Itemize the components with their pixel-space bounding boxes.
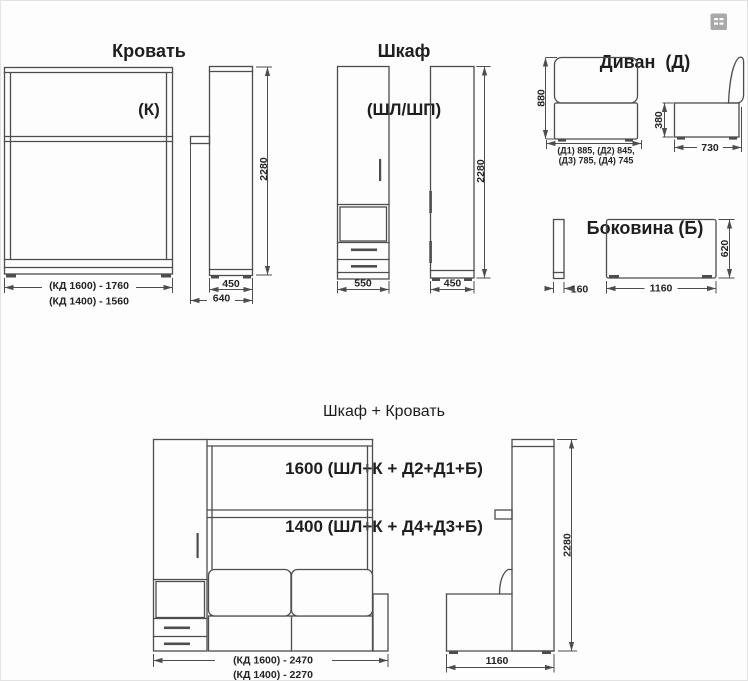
cabinet-side-dims: 450 2280 xyxy=(431,67,491,294)
image-placeholder-icon xyxy=(711,14,728,31)
combo-front-view xyxy=(154,440,389,652)
sidewall-edge-view xyxy=(554,220,565,279)
sidewall-thickness-dim: 160 xyxy=(571,284,589,296)
sofa-side-view xyxy=(675,57,744,139)
cabinet-width-dim: 550 xyxy=(354,278,372,290)
bed-side-view xyxy=(191,67,253,279)
bed-side-width-dim: 450 xyxy=(222,278,240,290)
furniture-dimensions-sheet: Кровать (К) Шкаф (ШЛ/ШП) Диван (Д) Боков… xyxy=(0,0,748,681)
sofa-widths-line1-dim: (Д1) 885, (Д2) 845, xyxy=(557,146,634,156)
bed-front-dims: (КД 1600) - 1760 (КД 1400) - 1560 xyxy=(5,278,173,308)
sidewall-dims: 160 1160 620 xyxy=(545,220,735,296)
combo-width-1600-dim: (КД 1600) - 2470 xyxy=(233,655,313,667)
cabinet-front-dims: 550 xyxy=(338,278,390,294)
bed-width-1400-dim: (КД 1400) - 1560 xyxy=(49,296,129,308)
cabinet-side-view xyxy=(429,67,474,282)
sidewall-length-dim: 1160 xyxy=(650,283,673,295)
sofa-height-dim: 880 xyxy=(536,89,548,107)
sofa-seat-height-dim: 380 xyxy=(653,111,665,129)
sofa-side-dims: 380 730 xyxy=(653,103,742,154)
bed-side-depth-dim: 640 xyxy=(213,293,231,305)
bed-height-dim: 2280 xyxy=(258,157,270,181)
combo-front-dims: (КД 1600) - 2470 (КД 1400) - 2270 xyxy=(154,654,389,681)
sofa-side-depth-dim: 730 xyxy=(701,142,719,154)
sofa-widths-line2-dim: (Д3) 785, (Д4) 745 xyxy=(559,156,634,166)
bed-front-view xyxy=(5,68,173,278)
cabinet-front-view xyxy=(338,67,390,280)
cabinet-height-dim: 2280 xyxy=(475,159,487,183)
sofa-front-view xyxy=(555,58,638,142)
sofa-front-dims: 880 (Д1) 885, (Д2) 845, (Д3) 785, (Д4) 7… xyxy=(536,58,642,166)
cabinet-side-depth-dim: 450 xyxy=(444,278,462,290)
bed-width-1600-dim: (КД 1600) - 1760 xyxy=(49,280,129,292)
combo-width-1400-dim: (КД 1400) - 2270 xyxy=(233,669,313,681)
combo-side-view xyxy=(447,440,555,655)
sidewall-front-view xyxy=(607,220,717,279)
sidewall-height-dim: 620 xyxy=(719,240,731,258)
combo-side-depth-dim: 1160 xyxy=(486,655,509,667)
combo-height-dim: 2280 xyxy=(562,533,574,557)
diagram-canvas: (КД 1600) - 1760 (КД 1400) - 1560 450 64… xyxy=(1,1,748,681)
